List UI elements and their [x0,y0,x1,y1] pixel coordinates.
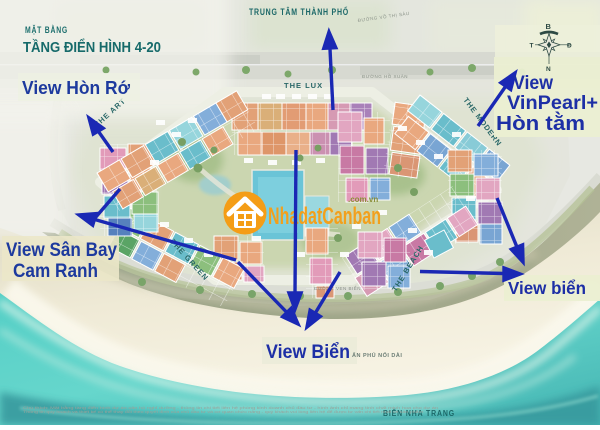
svg-text:Hòn tằm: Hòn tằm [496,111,585,135]
svg-text:TRUNG TÂM THÀNH PHỐ: TRUNG TÂM THÀNH PHỐ [249,6,349,17]
svg-text:View Sân Bay: View Sân Bay [6,240,117,261]
svg-text:B: B [546,22,552,31]
svg-text:TẦNG ĐIỂN HÌNH 4-20: TẦNG ĐIỂN HÌNH 4-20 [23,38,161,56]
svg-text:ĐƯỜNG VEN BIỂN: ĐƯỜNG VEN BIỂN [314,285,361,291]
svg-text:View biển: View biển [508,278,586,298]
svg-text:View Biển: View Biển [266,341,350,363]
svg-text:Thông tin quy hoạch và thiết k: Thông tin quy hoạch và thiết kế có thể t… [23,410,424,414]
svg-text:T: T [530,43,534,50]
svg-text:MẶT BẰNG: MẶT BẰNG [25,25,68,35]
svg-text:Cam Ranh: Cam Ranh [13,261,98,282]
svg-text:VinPearl+: VinPearl+ [507,93,598,114]
svg-text:ĐƯỜNG HỒ XUÂN: ĐƯỜNG HỒ XUÂN [362,73,408,79]
svg-text:View Hòn Rớ: View Hòn Rớ [22,77,131,98]
svg-text:NhadatCanban: NhadatCanban [268,203,381,230]
svg-text:Đ: Đ [567,43,572,50]
svg-text:ẤN PHÚ NỐI DÀI: ẤN PHÚ NỐI DÀI [352,352,402,359]
svg-text:THE LUX: THE LUX [284,81,323,90]
svg-text:View: View [513,72,554,94]
svg-text:N: N [546,66,551,73]
